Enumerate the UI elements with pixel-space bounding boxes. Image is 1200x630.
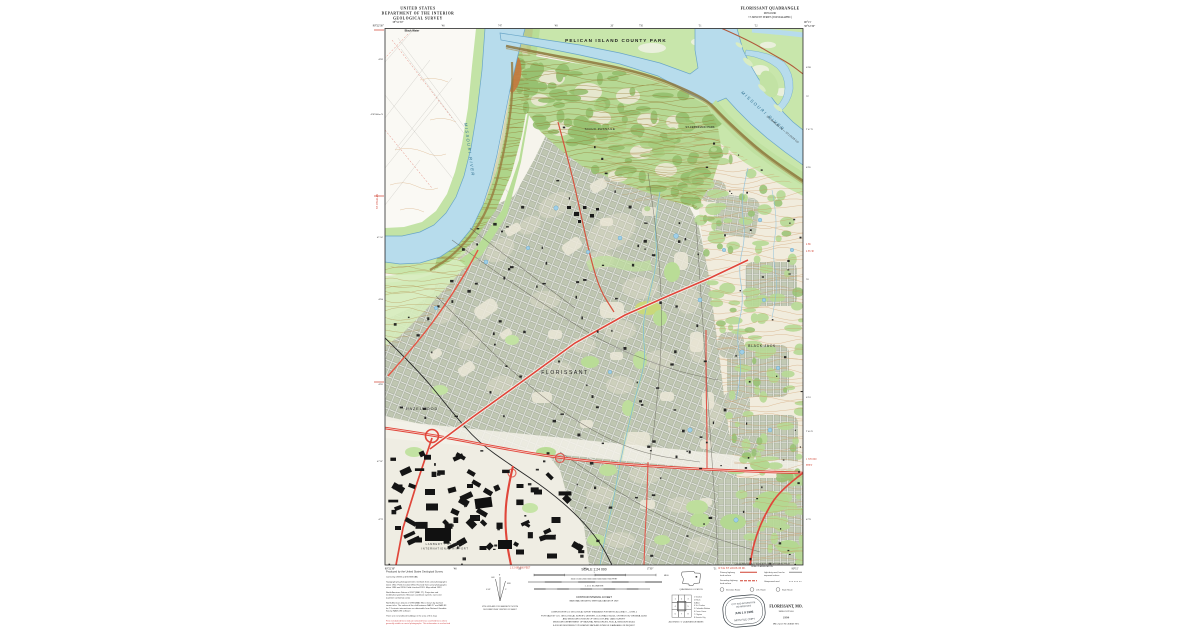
svg-text:Secondary highway,: Secondary highway, bbox=[720, 580, 738, 582]
svg-text:corner ticks. The values of t: corner ticks. The values of the shift be… bbox=[386, 604, 447, 607]
svg-text:BLACK JACK: BLACK JACK bbox=[748, 344, 776, 348]
svg-text:2 Elsah: 2 Elsah bbox=[694, 599, 700, 601]
svg-text:4788: 4788 bbox=[806, 66, 812, 69]
svg-text:47'30'': 47'30'' bbox=[377, 460, 384, 463]
svg-text:SIOUX PASSAGE: SIOUX PASSAGE bbox=[585, 127, 616, 131]
svg-text:4 85 30: 4 85 30 bbox=[806, 250, 814, 253]
svg-text:(Lambert conformal conic): (Lambert conformal conic) bbox=[386, 597, 410, 600]
svg-text:INTERNATIONAL AIRPORT: INTERNATIONAL AIRPORT bbox=[421, 547, 468, 551]
svg-text:★: ★ bbox=[499, 574, 501, 577]
svg-text:4782: 4782 bbox=[378, 383, 384, 386]
svg-text:State Route: State Route bbox=[782, 589, 793, 592]
svg-text:10,000-foot grid ticks: Missou: 10,000-foot grid ticks: Missouri coordin… bbox=[386, 594, 443, 597]
svg-text:1 370 000: 1 370 000 bbox=[806, 458, 817, 461]
svg-text:FLORISSANT: FLORISSANT bbox=[541, 370, 588, 376]
svg-text:GN: GN bbox=[491, 577, 495, 579]
svg-text:1°: 1° bbox=[505, 589, 507, 591]
svg-text:NATIONAL GEODETIC VERTICAL DAT: NATIONAL GEODETIC VERTICAL DATUM OF 1929 bbox=[570, 600, 620, 603]
svg-text:38090-G3-TF-024: 38090-G3-TF-024 bbox=[779, 611, 794, 613]
svg-text:QUADRANGLE LOCATION: QUADRANGLE LOCATION bbox=[679, 588, 703, 591]
svg-text:Produced by the United States: Produced by the United States Geological… bbox=[386, 570, 444, 574]
svg-text:4781: 4781 bbox=[806, 396, 812, 399]
svg-text:FLORISSANT QUADRANGLE: FLORISSANT QUADRANGLE bbox=[741, 7, 800, 11]
svg-text:4778: 4778 bbox=[806, 518, 812, 521]
svg-text:8 Granite City: 8 Granite City bbox=[694, 616, 706, 619]
svg-text:MN: MN bbox=[507, 583, 511, 585]
svg-text:FEET: FEET bbox=[806, 464, 813, 467]
svg-text:hard surface: hard surface bbox=[720, 583, 732, 585]
svg-text:hard surface: hard surface bbox=[720, 575, 732, 577]
svg-text:DECLINATION AT CENTER OF SHEET: DECLINATION AT CENTER OF SHEET bbox=[483, 608, 517, 611]
svg-text:North American Datum of 1927 (: North American Datum of 1927 (NAD 27). P… bbox=[386, 591, 439, 594]
svg-text:4784: 4784 bbox=[378, 298, 384, 301]
svg-text:Interstate Route: Interstate Route bbox=[726, 589, 741, 592]
svg-text:AND MISSOURI DIVISION OF GEOLO: AND MISSOURI DIVISION OF GEOLOGY AND LAN… bbox=[563, 618, 626, 621]
svg-text:R 6 E ST LOUIS 15 MI.: R 6 E ST LOUIS 15 MI. bbox=[719, 566, 746, 570]
svg-text:1 3 2 680 000 FEET: 1 3 2 680 000 FEET bbox=[510, 568, 531, 570]
svg-text:47°50': 47°50' bbox=[377, 236, 384, 239]
svg-text:4 St. Charles: 4 St. Charles bbox=[694, 604, 705, 607]
svg-text:7.5 MINUTE SERIES (TOPOGRAPHIC: 7.5 MINUTE SERIES (TOPOGRAPHIC) bbox=[748, 16, 792, 19]
svg-text:LAMBERT - ST LOUIS: LAMBERT - ST LOUIS bbox=[426, 542, 465, 546]
svg-text:Unimproved road: Unimproved road bbox=[764, 581, 779, 583]
svg-text:MILE: MILE bbox=[664, 575, 669, 577]
svg-text:ST CHARLES: ST CHARLES bbox=[376, 194, 379, 209]
svg-text:1994: 1994 bbox=[783, 616, 790, 620]
svg-text:DEPARTMENT OF THE INTERIOR: DEPARTMENT OF THE INTERIOR bbox=[382, 12, 455, 16]
svg-text:North American Datum of 1983 (: North American Datum of 1983 (NAD 83) is… bbox=[386, 601, 443, 604]
svg-text:0°41′: 0°41′ bbox=[486, 589, 492, 591]
svg-text:improved surface: improved surface bbox=[764, 575, 780, 577]
svg-text:PELICAN ISLAND COUNTY PARK: PELICAN ISLAND COUNTY PARK bbox=[565, 38, 667, 43]
svg-text:HAZELWOOD: HAZELWOOD bbox=[406, 407, 438, 411]
svg-text:ST. FERDINAND PARK: ST. FERDINAND PARK bbox=[685, 125, 714, 129]
svg-text:COMPLIES WITH U.S. GEOLOGICAL: COMPLIES WITH U.S. GEOLOGICAL SURVEY STA… bbox=[551, 611, 637, 614]
svg-text:DMA 7415 I SW–SERIES V875: DMA 7415 I SW–SERIES V875 bbox=[773, 623, 799, 626]
svg-text:4779: 4779 bbox=[378, 518, 384, 521]
svg-text:Topography by photogrammetric: Topography by photogrammetric methods fr… bbox=[386, 581, 447, 584]
svg-text:90°15': 90°15' bbox=[792, 568, 799, 571]
svg-text:Primary highway,: Primary highway, bbox=[720, 572, 736, 574]
svg-text:Light-duty road, hard or: Light-duty road, hard or bbox=[764, 571, 785, 574]
svg-text:4 86: 4 86 bbox=[806, 243, 811, 246]
svg-text:FLORISSANT, MO.: FLORISSANT, MO. bbox=[769, 605, 802, 609]
svg-text:90°22′30″: 90°22′30″ bbox=[373, 25, 385, 28]
svg-text:Fine red dashed lines indicate: Fine red dashed lines indicate selected … bbox=[386, 619, 448, 622]
svg-text:38°52′30″: 38°52′30″ bbox=[804, 25, 816, 28]
svg-text:6 Creve Coeur: 6 Creve Coeur bbox=[694, 610, 707, 613]
svg-text:A FOLDER DESCRIBING TOPOGRAPHI: A FOLDER DESCRIBING TOPOGRAPHIC MAPS AND… bbox=[553, 624, 636, 627]
svg-text:MISSOURI: MISSOURI bbox=[764, 12, 777, 15]
svg-text:There are no landmark building: There are no landmark buildings in the a… bbox=[386, 615, 438, 618]
svg-text:Black Water: Black Water bbox=[405, 29, 420, 33]
svg-text:FOR SALE BY U.S. GEOLOGICAL SU: FOR SALE BY U.S. GEOLOGICAL SURVEY, DENV… bbox=[541, 614, 647, 617]
svg-text:4787000m N: 4787000m N bbox=[370, 113, 383, 116]
svg-text:ROAD CLASSIFICATION: ROAD CLASSIFICATION bbox=[751, 565, 773, 568]
svg-text:ADJOINING 7.5′ QUADRANGLE NAME: ADJOINING 7.5′ QUADRANGLE NAMES bbox=[669, 621, 705, 624]
svg-text:90°15′: 90°15′ bbox=[804, 21, 812, 24]
svg-text:17'30'': 17'30'' bbox=[647, 568, 654, 571]
svg-text:for 7.5-minute intersections a: for 7.5-minute intersections are obtaina… bbox=[386, 607, 447, 610]
svg-text:1 Grafton: 1 Grafton bbox=[694, 596, 702, 599]
svg-text:7 Clayton: 7 Clayton bbox=[694, 613, 702, 616]
svg-text:Control by USGS and NOS/NOAA: Control by USGS and NOS/NOAA bbox=[386, 576, 418, 579]
svg-text:UNITED STATES: UNITED STATES bbox=[400, 7, 435, 11]
svg-text:GEOLOGICAL SURVEY: GEOLOGICAL SURVEY bbox=[393, 17, 443, 21]
svg-text:38°52′30″: 38°52′30″ bbox=[392, 21, 404, 24]
svg-text:1000 0 1000: 1000 0 1000 2000 3000 4000 5000 6000 700… bbox=[571, 579, 619, 581]
svg-text:CONTOUR INTERVAL 10 FEET: CONTOUR INTERVAL 10 FEET bbox=[576, 596, 612, 599]
svg-text:T 47 N: T 47 N bbox=[806, 128, 813, 131]
svg-text:MISSOURI DEPARTMENT OF NATURAL: MISSOURI DEPARTMENT OF NATURAL RESOURCES… bbox=[553, 621, 636, 624]
svg-text:4785: 4785 bbox=[806, 166, 812, 169]
svg-text:1 .5: 1 .5 0 1 KILOMETER bbox=[585, 586, 604, 588]
svg-text:Survey NADCON software: Survey NADCON software bbox=[386, 610, 411, 613]
svg-text:UTM GRID AND 1993 MAGNETIC NOR: UTM GRID AND 1993 MAGNETIC NORTH bbox=[482, 605, 519, 608]
svg-text:20': 20' bbox=[610, 25, 614, 28]
svg-text:4789: 4789 bbox=[378, 58, 384, 61]
svg-text:taken 1986 and 1990. Field ch: taken 1986 and 1990. Field checked 1991.… bbox=[386, 586, 442, 589]
svg-text:taken 1952. Field checked 195: taken 1952. Field checked 1954. Revised … bbox=[386, 583, 447, 586]
svg-text:generally visible on aerial ph: generally visible on aerial photographs.… bbox=[386, 622, 451, 625]
svg-text:T 46 N: T 46 N bbox=[806, 430, 813, 433]
svg-text:U.S. Route: U.S. Route bbox=[756, 589, 767, 592]
svg-text:3 Alton: 3 Alton bbox=[694, 601, 700, 604]
svg-text:5 Columbia Bottom: 5 Columbia Bottom bbox=[694, 607, 711, 610]
